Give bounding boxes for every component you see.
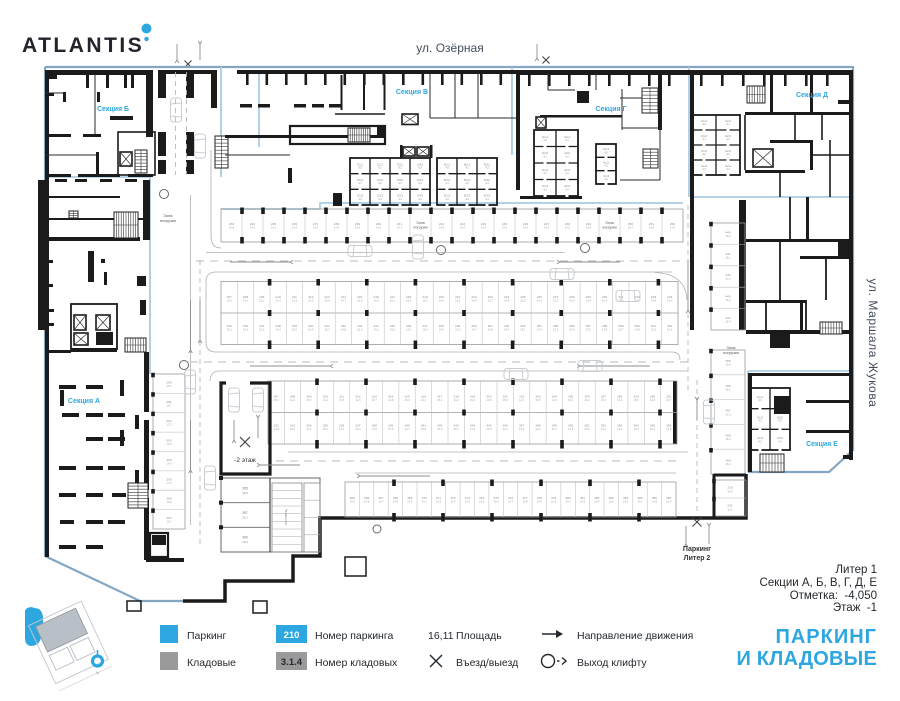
svg-text:14,0: 14,0 — [373, 299, 379, 303]
svg-text:14,7: 14,7 — [341, 299, 347, 303]
svg-text:376: 376 — [508, 496, 513, 500]
svg-text:251: 251 — [488, 324, 493, 328]
svg-text:14,8: 14,8 — [635, 328, 641, 332]
svg-text:386: 386 — [652, 496, 657, 500]
svg-text:14,5: 14,5 — [308, 299, 314, 303]
svg-text:14,8: 14,8 — [652, 499, 658, 503]
svg-text:244: 244 — [374, 324, 379, 328]
svg-text:320: 320 — [486, 394, 491, 398]
svg-text:14,8: 14,8 — [393, 499, 399, 503]
svg-text:14,1: 14,1 — [421, 398, 427, 402]
svg-text:14,0: 14,0 — [537, 499, 543, 503]
svg-text:16,11: 16,11 — [428, 630, 454, 642]
svg-text:249: 249 — [455, 324, 460, 328]
svg-text:14,5: 14,5 — [372, 427, 378, 431]
svg-text:346: 346 — [503, 423, 508, 427]
svg-text:16,2: 16,2 — [242, 540, 248, 544]
svg-text:369: 369 — [407, 496, 412, 500]
svg-text:15,2: 15,2 — [390, 328, 396, 332]
svg-text:458: 458 — [725, 434, 730, 438]
svg-text:16,4: 16,4 — [166, 462, 172, 466]
svg-text:330: 330 — [650, 394, 655, 398]
svg-text:14,5: 14,5 — [602, 299, 608, 303]
svg-text:338: 338 — [372, 423, 377, 427]
svg-text:ул. Озёрная: ул. Озёрная — [416, 41, 483, 55]
svg-text:Паркинг: Паркинг — [187, 630, 226, 642]
svg-text:210: 210 — [284, 630, 300, 641]
svg-text:14,4: 14,4 — [569, 328, 575, 332]
svg-text:14,4: 14,4 — [275, 328, 281, 332]
svg-text:15,6: 15,6 — [455, 328, 461, 332]
svg-text:351: 351 — [584, 423, 589, 427]
svg-text:365: 365 — [350, 496, 355, 500]
svg-text:323: 323 — [535, 394, 540, 398]
svg-text:15,4: 15,4 — [465, 499, 471, 503]
svg-text:350: 350 — [568, 423, 573, 427]
svg-text:15,5: 15,5 — [292, 328, 298, 332]
svg-text:345: 345 — [486, 423, 491, 427]
svg-text:312: 312 — [355, 394, 360, 398]
svg-text:15,0: 15,0 — [404, 398, 410, 402]
svg-text:тех.помещ.: тех.помещ. — [284, 509, 288, 526]
svg-text:15,2: 15,2 — [617, 427, 623, 431]
svg-text:239: 239 — [292, 324, 297, 328]
svg-text:15,2: 15,2 — [502, 225, 508, 229]
svg-text:14,6: 14,6 — [376, 225, 382, 229]
svg-text:15,8: 15,8 — [649, 225, 655, 229]
svg-text:14,6: 14,6 — [308, 328, 314, 332]
svg-text:309: 309 — [306, 394, 311, 398]
svg-text:15,7: 15,7 — [324, 328, 330, 332]
svg-text:297: 297 — [166, 516, 171, 520]
svg-text:15,4: 15,4 — [355, 427, 361, 431]
svg-text:223: 223 — [488, 295, 493, 299]
svg-text:15,7: 15,7 — [618, 328, 624, 332]
svg-text:293: 293 — [166, 439, 171, 443]
svg-text:244: 244 — [481, 222, 486, 226]
svg-text:219: 219 — [422, 295, 427, 299]
svg-text:15,5: 15,5 — [609, 499, 615, 503]
svg-text:15,5: 15,5 — [339, 398, 345, 402]
svg-text:259: 259 — [618, 324, 623, 328]
svg-text:344: 344 — [470, 423, 475, 427]
svg-text:14,3: 14,3 — [450, 499, 456, 503]
svg-text:214: 214 — [341, 295, 346, 299]
svg-text:15,0: 15,0 — [520, 299, 526, 303]
svg-text:15,1: 15,1 — [453, 427, 459, 431]
svg-text:353: 353 — [617, 423, 622, 427]
svg-text:14,0: 14,0 — [667, 299, 673, 303]
svg-text:246: 246 — [406, 324, 411, 328]
svg-text:Паркинг: Паркинг — [683, 546, 711, 553]
svg-text:230: 230 — [727, 486, 732, 490]
svg-text:356: 356 — [666, 423, 671, 427]
svg-text:235: 235 — [271, 222, 276, 226]
svg-text:15,0: 15,0 — [727, 489, 733, 493]
svg-text:15,8: 15,8 — [522, 499, 528, 503]
svg-text:238: 238 — [276, 324, 281, 328]
svg-text:294: 294 — [166, 458, 171, 462]
svg-text:15,0: 15,0 — [584, 427, 590, 431]
svg-text:15,6: 15,6 — [388, 427, 394, 431]
svg-text:14,3: 14,3 — [633, 427, 639, 431]
svg-text:15,0: 15,0 — [166, 384, 172, 388]
svg-text:14,3: 14,3 — [523, 225, 529, 229]
svg-text:Секция Д: Секция Д — [796, 92, 828, 99]
svg-text:321: 321 — [503, 394, 508, 398]
svg-text:15,7: 15,7 — [666, 398, 672, 402]
svg-text:370: 370 — [422, 496, 427, 500]
svg-text:382: 382 — [594, 496, 599, 500]
svg-text:230: 230 — [602, 295, 607, 299]
svg-text:349: 349 — [552, 423, 557, 427]
svg-text:371: 371 — [436, 496, 441, 500]
svg-text:14,1: 14,1 — [422, 499, 428, 503]
svg-text:14,4: 14,4 — [323, 398, 329, 402]
svg-text:N: N — [96, 670, 99, 675]
svg-text:14,7: 14,7 — [628, 225, 634, 229]
svg-text:234: 234 — [667, 295, 672, 299]
svg-text:343: 343 — [454, 423, 459, 427]
svg-text:14,7: 14,7 — [519, 398, 525, 402]
svg-text:14,4: 14,4 — [334, 225, 340, 229]
svg-text:14,8: 14,8 — [388, 398, 394, 402]
svg-text:254: 254 — [537, 324, 542, 328]
svg-text:15,0: 15,0 — [290, 427, 296, 431]
svg-text:15,3: 15,3 — [553, 328, 559, 332]
svg-text:14,1: 14,1 — [601, 427, 607, 431]
svg-text:Зона: Зона — [605, 221, 613, 225]
svg-text:14,4: 14,4 — [617, 398, 623, 402]
svg-text:236: 236 — [243, 324, 248, 328]
svg-text:368: 368 — [393, 496, 398, 500]
svg-text:14,4: 14,4 — [503, 427, 509, 431]
svg-text:15,3: 15,3 — [259, 328, 265, 332]
svg-text:336: 336 — [339, 423, 344, 427]
svg-text:318: 318 — [454, 394, 459, 398]
svg-text:16,1: 16,1 — [725, 388, 731, 392]
svg-text:222: 222 — [471, 295, 476, 299]
svg-text:210: 210 — [276, 295, 281, 299]
svg-text:220: 220 — [439, 295, 444, 299]
svg-text:14,6: 14,6 — [602, 328, 608, 332]
svg-text:262: 262 — [667, 324, 672, 328]
svg-text:ул. Маршала Жукова: ул. Маршала Жукова — [866, 279, 880, 408]
svg-text:443: 443 — [725, 295, 730, 299]
svg-text:352: 352 — [601, 423, 606, 427]
svg-text:3.1.4: 3.1.4 — [281, 657, 303, 668]
svg-text:341: 341 — [421, 423, 426, 427]
svg-text:444: 444 — [725, 316, 730, 320]
svg-text:15,2: 15,2 — [259, 299, 265, 303]
svg-text:Литер 1: Литер 1 — [836, 564, 878, 576]
svg-text:14,4: 14,4 — [594, 499, 600, 503]
svg-text:381: 381 — [580, 496, 585, 500]
svg-text:319: 319 — [470, 394, 475, 398]
svg-text:17,2: 17,2 — [166, 423, 172, 427]
svg-text:14,7: 14,7 — [508, 499, 514, 503]
svg-text:255: 255 — [553, 324, 558, 328]
svg-text:374: 374 — [479, 496, 484, 500]
svg-text:211: 211 — [292, 295, 297, 299]
svg-text:14,3: 14,3 — [339, 427, 345, 431]
svg-text:221: 221 — [455, 295, 460, 299]
svg-text:15,5: 15,5 — [586, 328, 592, 332]
svg-text:326: 326 — [584, 394, 589, 398]
svg-text:340: 340 — [405, 423, 410, 427]
svg-text:226: 226 — [537, 295, 542, 299]
svg-text:354: 354 — [634, 423, 639, 427]
svg-text:15,5: 15,5 — [355, 225, 361, 229]
svg-text:14,6: 14,6 — [355, 398, 361, 402]
svg-text:441: 441 — [725, 252, 730, 256]
svg-text:236: 236 — [292, 222, 297, 226]
svg-text:228: 228 — [569, 295, 574, 299]
svg-text:15,6: 15,6 — [166, 500, 172, 504]
svg-text:213: 213 — [325, 295, 330, 299]
svg-text:14,5: 14,5 — [479, 499, 485, 503]
svg-text:14,5: 14,5 — [666, 427, 672, 431]
svg-text:383: 383 — [609, 496, 614, 500]
svg-text:234: 234 — [250, 222, 255, 226]
svg-text:233: 233 — [229, 222, 234, 226]
svg-text:15,3: 15,3 — [306, 398, 312, 402]
svg-text:256: 256 — [569, 324, 574, 328]
svg-text:240: 240 — [308, 324, 313, 328]
svg-text:Номер кладовых: Номер кладовых — [315, 657, 398, 669]
svg-text:315: 315 — [405, 394, 410, 398]
svg-text:379: 379 — [551, 496, 556, 500]
svg-text:232: 232 — [635, 295, 640, 299]
svg-text:Секция А: Секция А — [68, 398, 100, 405]
svg-text:15,7: 15,7 — [378, 499, 384, 503]
svg-text:14,0: 14,0 — [504, 328, 510, 332]
svg-text:15,5: 15,5 — [350, 499, 356, 503]
svg-text:455: 455 — [725, 359, 730, 363]
svg-text:14,0: 14,0 — [670, 225, 676, 229]
svg-text:15,4: 15,4 — [586, 299, 592, 303]
svg-text:16,1: 16,1 — [727, 507, 733, 511]
svg-text:15,3: 15,3 — [166, 442, 172, 446]
svg-text:Направление движения: Направление движения — [577, 630, 693, 642]
svg-text:Отметка: -4,050: Отметка: -4,050 — [790, 590, 877, 602]
svg-text:348: 348 — [535, 423, 540, 427]
svg-text:242: 242 — [341, 324, 346, 328]
svg-text:16,1: 16,1 — [166, 403, 172, 407]
svg-text:14,6: 14,6 — [535, 427, 541, 431]
svg-text:218: 218 — [406, 295, 411, 299]
svg-text:251: 251 — [649, 222, 654, 226]
svg-text:395: 395 — [242, 486, 248, 490]
svg-text:15,7: 15,7 — [488, 299, 494, 303]
svg-text:погрузки: погрузки — [723, 350, 739, 355]
svg-text:Секция Г: Секция Г — [595, 106, 626, 113]
svg-text:14,6: 14,6 — [471, 299, 477, 303]
svg-text:15,0: 15,0 — [651, 328, 657, 332]
svg-text:252: 252 — [670, 222, 675, 226]
svg-text:Кладовые: Кладовые — [187, 657, 236, 669]
svg-text:332: 332 — [274, 423, 279, 427]
svg-text:14,1: 14,1 — [306, 427, 312, 431]
svg-text:457: 457 — [725, 409, 730, 413]
svg-text:14,8: 14,8 — [274, 427, 280, 431]
svg-text:229: 229 — [586, 295, 591, 299]
svg-text:252: 252 — [504, 324, 509, 328]
svg-text:248: 248 — [439, 324, 444, 328]
svg-text:14,8: 14,8 — [568, 427, 574, 431]
svg-text:14,4: 14,4 — [439, 299, 445, 303]
svg-text:367: 367 — [378, 496, 383, 500]
svg-text:260: 260 — [635, 324, 640, 328]
svg-text:16,1: 16,1 — [725, 255, 731, 259]
svg-text:14,2: 14,2 — [243, 328, 249, 332]
svg-text:15,8: 15,8 — [229, 225, 235, 229]
svg-text:15,6: 15,6 — [503, 398, 509, 402]
svg-text:317: 317 — [437, 394, 442, 398]
svg-text:15,1: 15,1 — [568, 398, 574, 402]
svg-text:233: 233 — [651, 295, 656, 299]
svg-text:241: 241 — [325, 324, 330, 328]
svg-text:Въезд/выезд: Въезд/выезд — [456, 657, 518, 669]
svg-text:Выход клифту: Выход клифту — [577, 657, 647, 669]
svg-text:15,0: 15,0 — [357, 328, 363, 332]
svg-text:245: 245 — [502, 222, 507, 226]
svg-text:224: 224 — [504, 295, 509, 299]
svg-text:15,4: 15,4 — [470, 398, 476, 402]
svg-text:327: 327 — [601, 394, 606, 398]
svg-text:14,0: 14,0 — [250, 225, 256, 229]
svg-text:366: 366 — [364, 496, 369, 500]
svg-text:237: 237 — [313, 222, 318, 226]
svg-text:15,3: 15,3 — [601, 398, 607, 402]
svg-text:15,7: 15,7 — [637, 499, 643, 503]
svg-text:261: 261 — [651, 324, 656, 328]
svg-text:242: 242 — [439, 222, 444, 226]
svg-text:377: 377 — [522, 496, 527, 500]
svg-text:15,7: 15,7 — [372, 398, 378, 402]
svg-text:217: 217 — [390, 295, 395, 299]
svg-text:15,4: 15,4 — [292, 299, 298, 303]
svg-text:227: 227 — [553, 295, 558, 299]
svg-text:15,3: 15,3 — [486, 427, 492, 431]
svg-text:243: 243 — [357, 324, 362, 328]
svg-text:15,1: 15,1 — [390, 299, 396, 303]
svg-text:15,8: 15,8 — [651, 299, 657, 303]
svg-text:324: 324 — [552, 394, 557, 398]
svg-text:15,5: 15,5 — [455, 299, 461, 303]
svg-text:14,3: 14,3 — [569, 299, 575, 303]
svg-text:239: 239 — [355, 222, 360, 226]
svg-text:14,1: 14,1 — [667, 328, 673, 332]
svg-text:15,6: 15,6 — [586, 225, 592, 229]
svg-text:15,5: 15,5 — [519, 427, 525, 431]
svg-text:322: 322 — [519, 394, 524, 398]
svg-text:14,5: 14,5 — [439, 328, 445, 332]
svg-text:240: 240 — [376, 222, 381, 226]
svg-text:249: 249 — [586, 222, 591, 226]
svg-text:313: 313 — [372, 394, 377, 398]
svg-text:погрузки: погрузки — [602, 225, 616, 229]
svg-text:238: 238 — [334, 222, 339, 226]
svg-text:14,2: 14,2 — [290, 398, 296, 402]
svg-text:14,6: 14,6 — [364, 499, 370, 503]
svg-text:15,0: 15,0 — [227, 299, 233, 303]
svg-text:355: 355 — [650, 423, 655, 427]
svg-text:погрузки: погрузки — [413, 225, 427, 229]
svg-text:225: 225 — [520, 295, 525, 299]
svg-text:Литер 2: Литер 2 — [684, 555, 711, 562]
svg-text:15,4: 15,4 — [650, 427, 656, 431]
svg-text:335: 335 — [323, 423, 328, 427]
svg-text:310: 310 — [323, 394, 328, 398]
svg-text:15,0: 15,0 — [666, 499, 672, 503]
svg-text:399: 399 — [242, 536, 248, 540]
svg-text:16,1: 16,1 — [242, 516, 248, 520]
svg-text:311: 311 — [339, 394, 344, 398]
svg-text:погрузки: погрузки — [160, 218, 176, 223]
svg-text:15,2: 15,2 — [323, 427, 329, 431]
svg-text:15,6: 15,6 — [493, 499, 499, 503]
svg-text:316: 316 — [421, 394, 426, 398]
svg-text:15,7: 15,7 — [397, 225, 403, 229]
svg-text:15,4: 15,4 — [544, 225, 550, 229]
svg-text:15,8: 15,8 — [421, 427, 427, 431]
svg-text:14,2: 14,2 — [565, 499, 571, 503]
svg-text:342: 342 — [437, 423, 442, 427]
svg-text:253: 253 — [520, 324, 525, 328]
svg-text:14,2: 14,2 — [584, 398, 590, 402]
svg-text:15,8: 15,8 — [357, 299, 363, 303]
svg-text:17,2: 17,2 — [725, 277, 731, 281]
svg-text:14,1: 14,1 — [373, 328, 379, 332]
svg-text:14,2: 14,2 — [292, 225, 298, 229]
svg-text:14,7: 14,7 — [404, 427, 410, 431]
svg-text:14,2: 14,2 — [470, 427, 476, 431]
svg-text:Зона: Зона — [416, 221, 424, 225]
svg-text:15,0: 15,0 — [725, 234, 731, 238]
svg-text:331: 331 — [666, 394, 671, 398]
svg-text:-2 этаж: -2 этаж — [234, 457, 256, 464]
svg-text:250: 250 — [471, 324, 476, 328]
svg-text:15,1: 15,1 — [274, 398, 280, 402]
svg-text:231: 231 — [727, 504, 732, 508]
svg-text:442: 442 — [725, 273, 730, 277]
svg-text:290: 290 — [166, 380, 171, 384]
svg-text:Площадь: Площадь — [456, 630, 502, 642]
svg-text:216: 216 — [374, 295, 379, 299]
svg-text:397: 397 — [242, 511, 248, 515]
svg-text:380: 380 — [566, 496, 571, 500]
svg-text:375: 375 — [494, 496, 499, 500]
svg-text:440: 440 — [725, 230, 730, 234]
svg-text:ПАРКИНГ: ПАРКИНГ — [775, 626, 877, 648]
svg-text:Этаж -1: Этаж -1 — [833, 602, 877, 614]
svg-text:14,2: 14,2 — [406, 299, 412, 303]
svg-text:14,5: 14,5 — [486, 398, 492, 402]
svg-text:295: 295 — [166, 477, 171, 481]
svg-text:14,8: 14,8 — [504, 299, 510, 303]
svg-text:14,8: 14,8 — [341, 328, 347, 332]
svg-text:291: 291 — [166, 400, 171, 404]
svg-text:15,3: 15,3 — [422, 299, 428, 303]
svg-text:329: 329 — [634, 394, 639, 398]
svg-text:250: 250 — [628, 222, 633, 226]
svg-text:14,0: 14,0 — [437, 427, 443, 431]
svg-text:208: 208 — [243, 295, 248, 299]
svg-text:243: 243 — [460, 222, 465, 226]
svg-text:15,1: 15,1 — [551, 499, 557, 503]
svg-text:337: 337 — [355, 423, 360, 427]
